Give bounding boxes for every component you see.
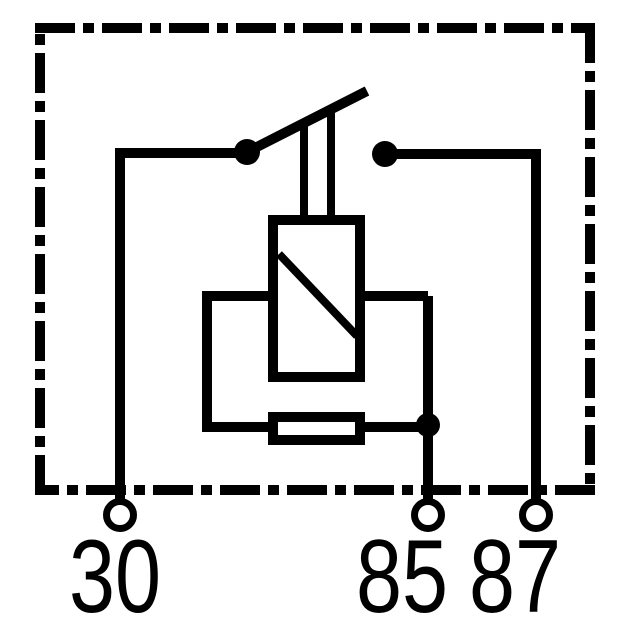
terminal-30-wire [120, 153, 247, 501]
terminal-87-wire [385, 154, 536, 501]
terminal-85-label: 85 [356, 519, 448, 632]
relay-schematic-svg: 30 85 87 [0, 0, 632, 632]
terminal-87-label: 87 [469, 519, 561, 632]
contact-dot-30 [234, 139, 260, 165]
coil-left-lead-wire [207, 296, 272, 427]
contact-dot-87 [372, 141, 398, 167]
resistor-body [273, 417, 360, 440]
terminal-30-label: 30 [69, 519, 161, 632]
relay-coil [273, 220, 360, 377]
terminal-labels: 30 85 87 [69, 519, 561, 632]
junction-dot-85 [416, 413, 440, 437]
relay-circuit-diagram: 30 85 87 [0, 0, 632, 632]
